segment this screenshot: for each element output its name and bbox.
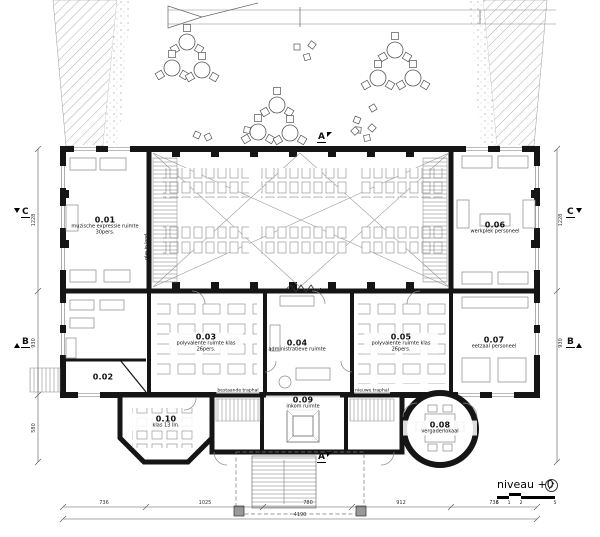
scale-tick-5: 5	[554, 501, 557, 506]
dim-right-2: 930	[558, 338, 564, 348]
scale-tick-0: 0	[496, 501, 499, 506]
dim-bottom-3: 780	[303, 500, 313, 506]
scale-bar-segment	[509, 493, 521, 496]
dim-bottom-total: 4190	[294, 512, 307, 518]
dim-left-1: 1228	[31, 214, 37, 227]
scale-bar	[497, 493, 555, 499]
section-marker-a-bottom: A	[317, 452, 332, 463]
section-letter: A	[317, 453, 326, 463]
scale-bar-segment	[497, 496, 509, 499]
dim-left-3: 580	[31, 423, 37, 433]
section-marker-c-right: C	[566, 208, 582, 218]
section-cut-icon	[14, 343, 20, 348]
dim-right-1: 1228	[558, 214, 564, 227]
dim-left-2: 930	[31, 338, 37, 348]
main-hall	[153, 153, 449, 292]
section-marker-b-left: B	[14, 338, 30, 348]
section-letter: A	[317, 133, 326, 143]
section-cut-icon	[327, 132, 332, 137]
courtyard-furniture	[155, 25, 430, 145]
scale-tick-2: 2	[520, 501, 523, 506]
section-cut-icon	[14, 208, 20, 213]
garden	[53, 0, 556, 146]
section-letter: B	[21, 338, 30, 348]
dim-bottom-1: 736	[99, 500, 109, 506]
section-cut-icon	[327, 452, 332, 457]
section-letter: B	[566, 338, 575, 348]
scale-bar-segment	[521, 496, 555, 499]
floor-plan-page: 0.01 muzische expressie ruimte 30pers. 0…	[0, 0, 600, 537]
section-marker-a-top: A	[317, 132, 332, 143]
dim-bottom-4: 912	[396, 500, 406, 506]
section-letter: C	[566, 208, 575, 218]
annotation-glas-in-lood: glas in lood	[144, 234, 151, 260]
annotation-stair-right: nieuwe traphal	[354, 389, 390, 394]
dim-bottom-2: 1025	[199, 500, 212, 506]
section-marker-b-right: B	[566, 338, 582, 348]
scale-tick-1: 1	[508, 501, 511, 506]
entrance-portico	[234, 452, 366, 516]
floorplan-drawing	[0, 0, 600, 537]
section-cut-icon	[576, 343, 582, 348]
north-arrow-icon	[545, 479, 558, 492]
section-marker-c-left: C	[14, 208, 30, 218]
annotation-stair-left: bestaande traphal	[216, 389, 259, 394]
section-cut-icon	[576, 208, 582, 213]
section-letter: C	[21, 208, 30, 218]
